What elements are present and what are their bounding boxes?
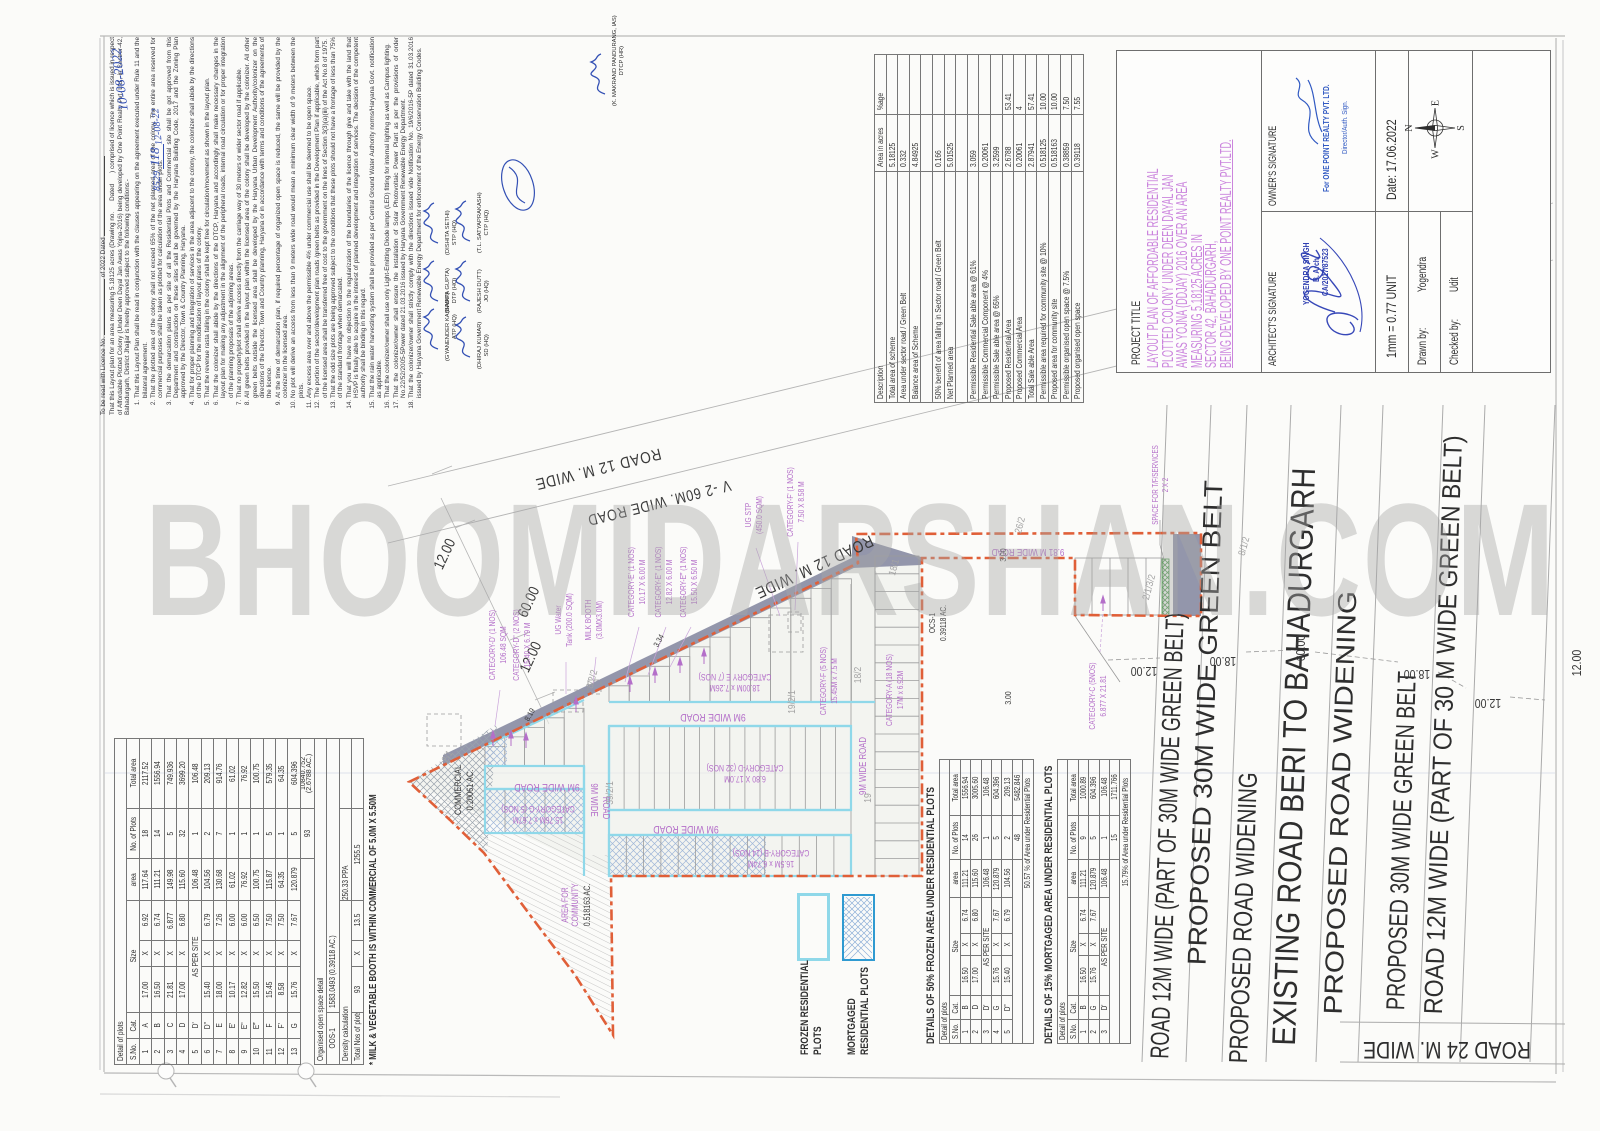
svg-text:S: S (1456, 125, 1466, 131)
svg-text:E: E (1431, 100, 1442, 106)
svg-text:N: N (1404, 124, 1415, 131)
svg-text:W: W (1431, 149, 1442, 159)
